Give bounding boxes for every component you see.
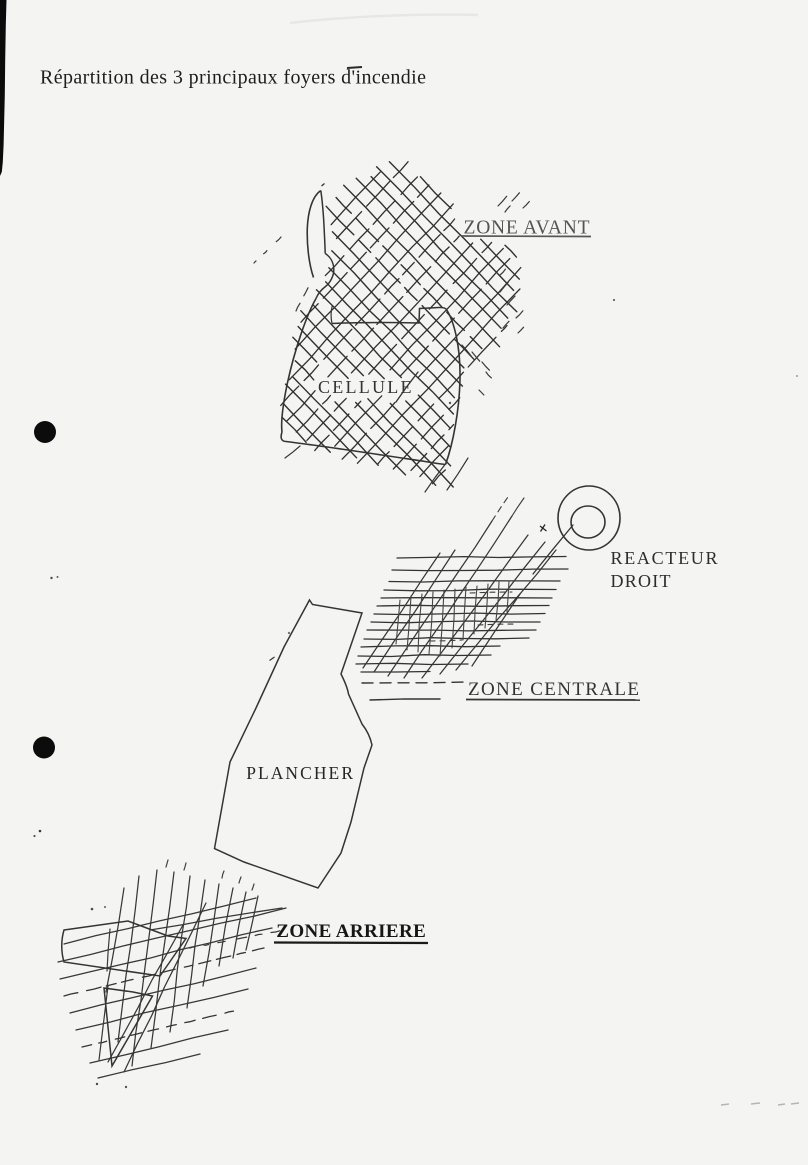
- svg-text:PLANCHER: PLANCHER: [246, 763, 353, 783]
- svg-text:ZONE ARRIERE: ZONE ARRIERE: [276, 921, 426, 942]
- svg-text:CELLULE: CELLULE: [318, 377, 412, 397]
- svg-text:Répartition des 3 principaux f: Répartition des 3 principaux foyers d'in…: [40, 67, 426, 89]
- svg-text:DROIT: DROIT: [611, 571, 671, 591]
